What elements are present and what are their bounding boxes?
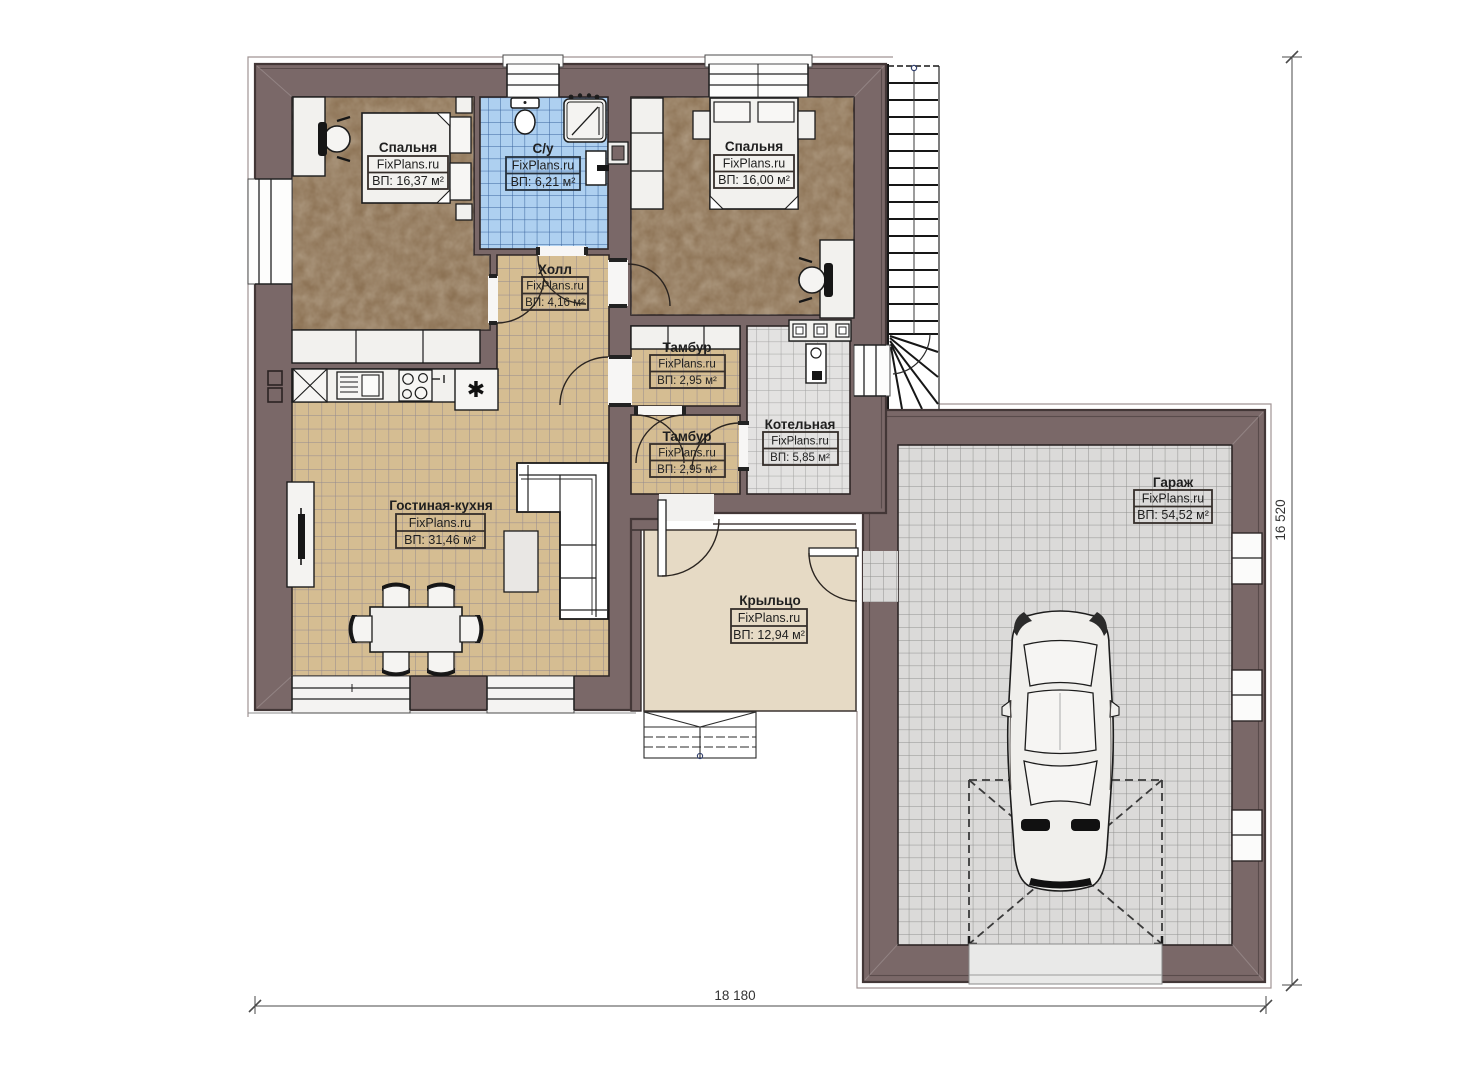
- svg-text:Гараж: Гараж: [1153, 475, 1194, 490]
- svg-text:FixPlans.ru: FixPlans.ru: [1142, 492, 1205, 506]
- svg-text:ВП: 2,95 м²: ВП: 2,95 м²: [657, 375, 717, 387]
- svg-text:Котельная: Котельная: [765, 417, 836, 432]
- svg-text:ВП: 2,95 м²: ВП: 2,95 м²: [657, 464, 717, 476]
- svg-text:Тамбур: Тамбур: [663, 429, 712, 444]
- svg-text:16 520: 16 520: [1273, 499, 1288, 540]
- svg-text:ВП: 6,21 м²: ВП: 6,21 м²: [511, 175, 576, 189]
- svg-text:Тамбур: Тамбур: [663, 340, 712, 355]
- svg-text:FixPlans.ru: FixPlans.ru: [658, 359, 716, 371]
- svg-text:ВП: 4,16 м²: ВП: 4,16 м²: [525, 297, 585, 309]
- svg-text:FixPlans.ru: FixPlans.ru: [526, 281, 584, 293]
- svg-text:ВП: 54,52 м²: ВП: 54,52 м²: [1137, 508, 1209, 522]
- svg-text:Холл: Холл: [538, 262, 572, 277]
- svg-text:FixPlans.ru: FixPlans.ru: [738, 611, 801, 625]
- svg-text:FixPlans.ru: FixPlans.ru: [512, 159, 575, 173]
- svg-text:ВП: 5,85 м²: ВП: 5,85 м²: [770, 452, 830, 464]
- svg-text:Спальня: Спальня: [379, 140, 437, 155]
- svg-text:С/у: С/у: [532, 141, 554, 156]
- svg-text:FixPlans.ru: FixPlans.ru: [771, 436, 829, 448]
- svg-text:ВП: 12,94 м²: ВП: 12,94 м²: [733, 628, 805, 642]
- svg-text:FixPlans.ru: FixPlans.ru: [658, 448, 716, 460]
- svg-text:Спальня: Спальня: [725, 139, 783, 154]
- svg-text:Гостиная-кухня: Гостиная-кухня: [389, 498, 492, 513]
- svg-text:FixPlans.ru: FixPlans.ru: [409, 516, 472, 530]
- svg-text:✱: ✱: [467, 377, 485, 402]
- svg-text:18 180: 18 180: [714, 988, 755, 1003]
- svg-text:ВП: 16,37 м²: ВП: 16,37 м²: [372, 174, 444, 188]
- svg-text:ВП: 31,46 м²: ВП: 31,46 м²: [404, 533, 476, 547]
- svg-text:Крыльцо: Крыльцо: [739, 593, 800, 608]
- svg-text:FixPlans.ru: FixPlans.ru: [377, 158, 440, 172]
- svg-text:FixPlans.ru: FixPlans.ru: [723, 157, 786, 171]
- svg-text:ВП: 16,00 м²: ВП: 16,00 м²: [718, 173, 790, 187]
